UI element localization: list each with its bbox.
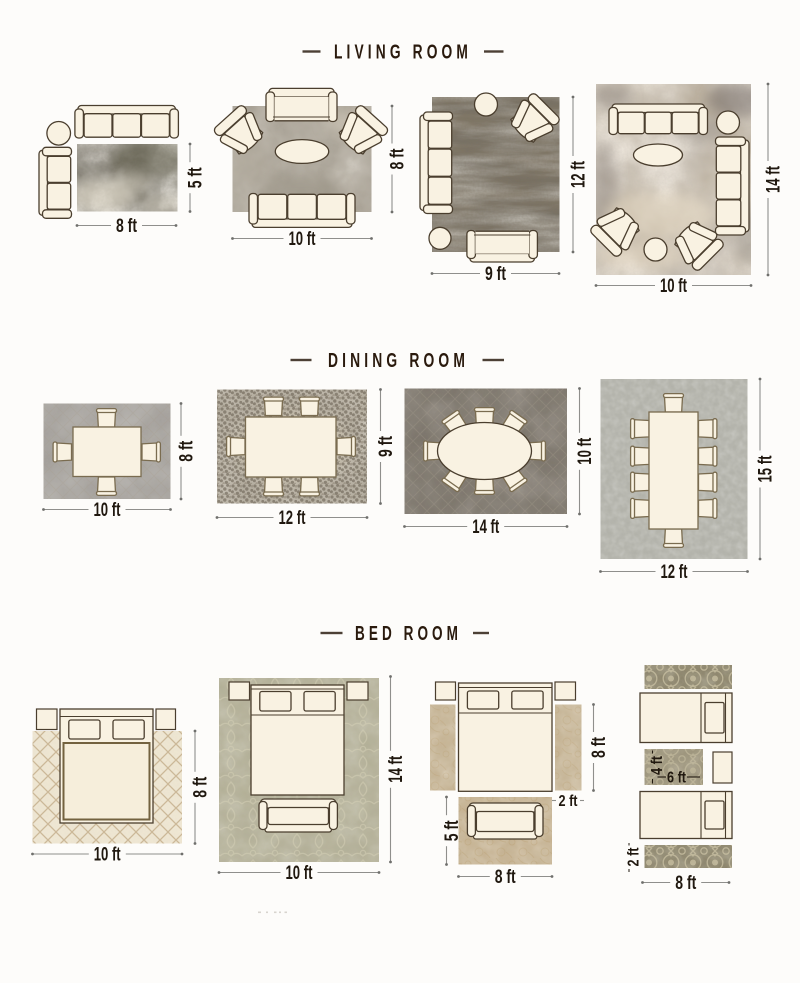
svg-text:8 ft: 8 ft bbox=[190, 776, 211, 797]
svg-text:14 ft: 14 ft bbox=[386, 755, 407, 782]
svg-text:14 ft: 14 ft bbox=[763, 166, 784, 193]
svg-text:5 ft: 5 ft bbox=[442, 820, 463, 841]
svg-text:15 ft: 15 ft bbox=[755, 455, 776, 482]
svg-text:9 ft: 9 ft bbox=[485, 264, 506, 285]
svg-text:12 ft: 12 ft bbox=[568, 161, 589, 188]
svg-text:2 ft: 2 ft bbox=[626, 847, 643, 867]
svg-text:8 ft: 8 ft bbox=[176, 440, 197, 461]
svg-text:10 ft: 10 ft bbox=[94, 500, 121, 521]
svg-text:10 ft: 10 ft bbox=[660, 276, 687, 297]
svg-text:4 ft: 4 ft bbox=[649, 755, 666, 775]
svg-text:8 ft: 8 ft bbox=[116, 216, 137, 237]
svg-text:DINING ROOM: DINING ROOM bbox=[328, 350, 469, 372]
svg-text:10 ft: 10 ft bbox=[94, 844, 121, 865]
svg-text:6 ft: 6 ft bbox=[667, 769, 687, 786]
svg-text:12 ft: 12 ft bbox=[279, 508, 306, 529]
svg-text:8 ft: 8 ft bbox=[589, 737, 610, 758]
svg-text:10 ft: 10 ft bbox=[286, 863, 313, 884]
svg-text:8 ft: 8 ft bbox=[675, 873, 696, 894]
svg-text:2 ft: 2 ft bbox=[559, 793, 579, 810]
svg-text:LIVING ROOM: LIVING ROOM bbox=[334, 42, 472, 64]
svg-text:12 ft: 12 ft bbox=[661, 562, 688, 583]
svg-text:8 ft: 8 ft bbox=[495, 867, 516, 888]
svg-text:14 ft: 14 ft bbox=[472, 517, 499, 538]
svg-text:10 ft: 10 ft bbox=[289, 229, 316, 250]
svg-text:9 ft: 9 ft bbox=[376, 436, 397, 457]
svg-text:10 ft: 10 ft bbox=[575, 437, 596, 464]
svg-text:BED ROOM: BED ROOM bbox=[355, 623, 462, 645]
svg-text:5 ft: 5 ft bbox=[185, 167, 206, 188]
svg-text:8 ft: 8 ft bbox=[387, 148, 408, 169]
